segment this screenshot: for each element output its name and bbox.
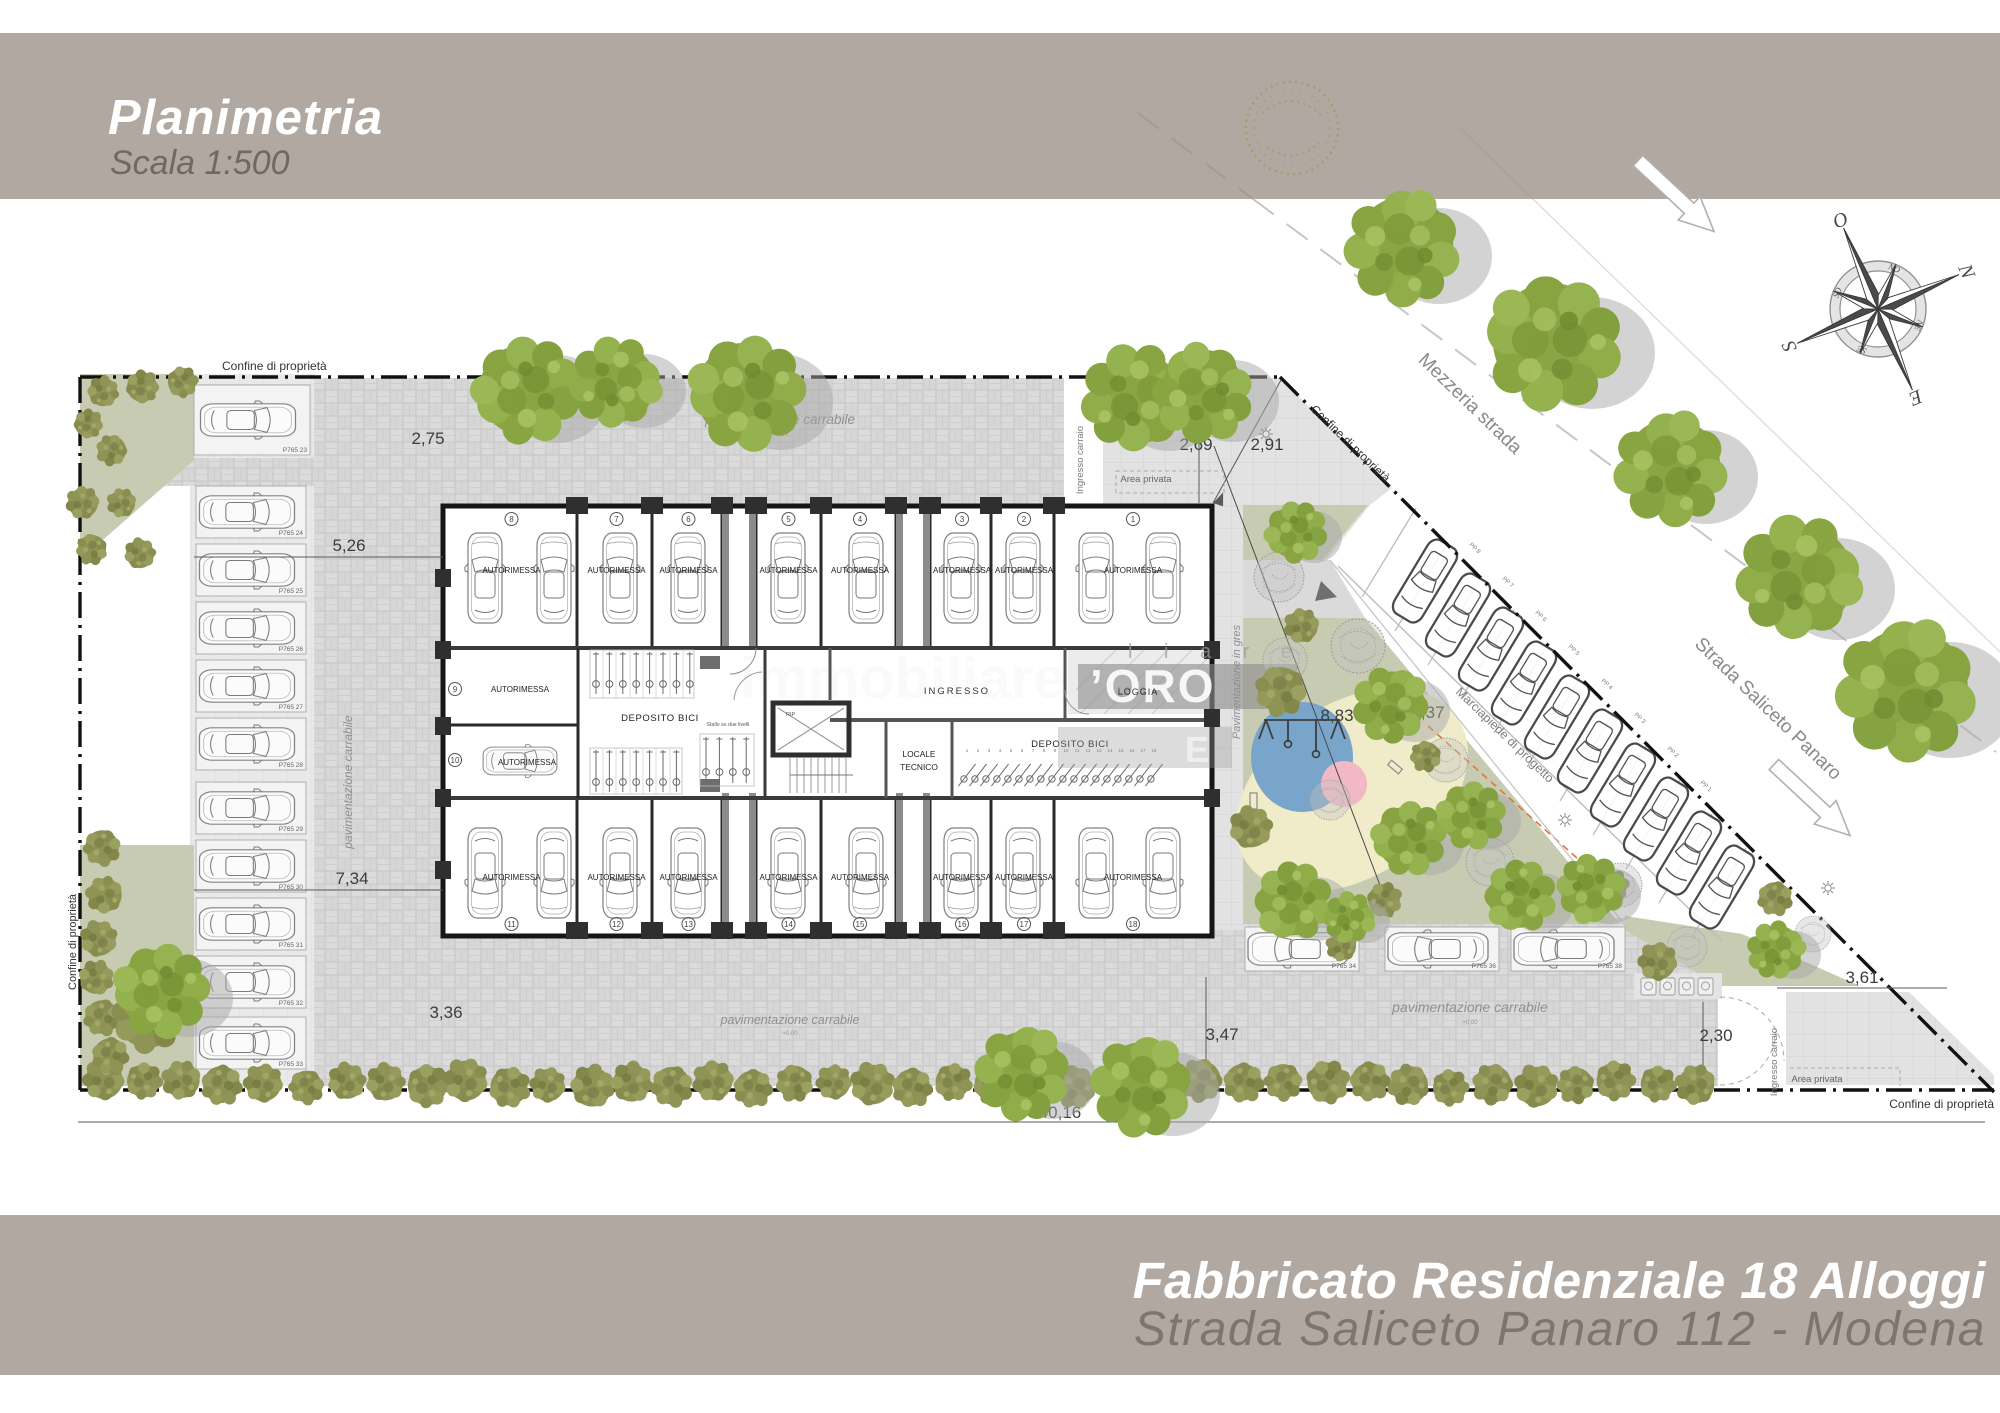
svg-text:3: 3	[960, 515, 965, 524]
svg-text:3,61: 3,61	[1845, 968, 1878, 987]
svg-text:P765 38: P765 38	[1598, 963, 1623, 970]
svg-text:P765 29: P765 29	[279, 826, 304, 833]
svg-text:AUTORIMESSA: AUTORIMESSA	[995, 566, 1054, 575]
svg-text:2,91: 2,91	[1250, 435, 1283, 454]
svg-text:RIP: RIP	[786, 712, 796, 718]
svg-text:Strada Saliceto Panaro 112 - M: Strada Saliceto Panaro 112 - Modena	[1134, 1303, 1986, 1356]
svg-text:AUTORIMESSA: AUTORIMESSA	[491, 685, 550, 694]
svg-text:P765 33: P765 33	[279, 1061, 304, 1068]
svg-text:11: 11	[507, 920, 516, 929]
svg-text:P765 23: P765 23	[283, 447, 308, 454]
svg-text:AUTORIMESSA: AUTORIMESSA	[831, 566, 890, 575]
svg-text:+0,00: +0,00	[782, 1031, 798, 1037]
svg-text:1: 1	[1131, 515, 1136, 524]
svg-text:P765 32: P765 32	[279, 1000, 304, 1007]
svg-text:+0,00: +0,00	[1462, 1020, 1478, 1026]
svg-text:AUTORIMESSA: AUTORIMESSA	[587, 566, 646, 575]
svg-text:P765 27: P765 27	[279, 704, 304, 711]
svg-text:AUTORIMESSA: AUTORIMESSA	[498, 758, 557, 767]
svg-text:immobiliare: immobiliare	[740, 646, 1066, 711]
svg-text:16: 16	[958, 920, 967, 929]
svg-text:13: 13	[684, 920, 693, 929]
svg-text:Fabbricato Residenziale 18 All: Fabbricato Residenziale 18 Alloggi	[1133, 1252, 1988, 1309]
svg-text:2: 2	[1022, 515, 1027, 524]
svg-text:17: 17	[1020, 920, 1029, 929]
svg-text:LOCALE: LOCALE	[902, 749, 935, 759]
svg-text:P765 24: P765 24	[279, 530, 304, 537]
svg-text:DEPOSITO BICI: DEPOSITO BICI	[621, 713, 699, 724]
svg-text:15: 15	[856, 920, 865, 929]
svg-text:3,36: 3,36	[429, 1003, 462, 1022]
svg-text:P765 31: P765 31	[279, 942, 304, 949]
svg-text:2,30: 2,30	[1699, 1026, 1732, 1045]
svg-text:Stallo su due livelli: Stallo su due livelli	[707, 722, 750, 728]
svg-text:AUTORIMESSA: AUTORIMESSA	[587, 873, 646, 882]
svg-text:9: 9	[453, 685, 458, 694]
svg-text:AUTORIMESSA: AUTORIMESSA	[1104, 566, 1163, 575]
svg-text:Confine di proprietà: Confine di proprietà	[1889, 1097, 1994, 1111]
svg-text:AUTORIMESSA: AUTORIMESSA	[482, 873, 541, 882]
svg-text:TECNICO: TECNICO	[900, 762, 938, 772]
svg-text:Area privata: Area privata	[1120, 474, 1172, 485]
svg-text:Ingresso carraio: Ingresso carraio	[1769, 1028, 1780, 1096]
svg-text:pavimentazione carrabile: pavimentazione carrabile	[341, 715, 355, 850]
svg-text:pavimentazione carrabile: pavimentazione carrabile	[1391, 999, 1548, 1015]
svg-text:AUTORIMESSA: AUTORIMESSA	[995, 873, 1054, 882]
svg-text:5,26: 5,26	[332, 536, 365, 555]
svg-text:Confine di proprietà: Confine di proprietà	[222, 359, 327, 373]
svg-text:P765 34: P765 34	[1332, 963, 1357, 970]
svg-text:6: 6	[686, 515, 691, 524]
svg-text:Scala 1:500: Scala 1:500	[110, 144, 290, 182]
svg-text:AUTORIMESSA: AUTORIMESSA	[831, 873, 890, 882]
svg-text:18: 18	[1129, 920, 1138, 929]
svg-text:3,47: 3,47	[1205, 1025, 1238, 1044]
svg-text:10: 10	[451, 756, 460, 765]
svg-text:14: 14	[784, 920, 793, 929]
svg-text:AUTORIMESSA: AUTORIMESSA	[659, 873, 718, 882]
svg-text:AUTORIMESSA: AUTORIMESSA	[659, 566, 718, 575]
svg-text:7,34: 7,34	[335, 869, 368, 888]
svg-text:AUTORIMESSA: AUTORIMESSA	[759, 566, 818, 575]
svg-text:LOGGIA: LOGGIA	[1118, 687, 1159, 697]
svg-text:P765 25: P765 25	[279, 588, 304, 595]
svg-text:P765 28: P765 28	[279, 762, 304, 769]
svg-text:AUTORIMESSA: AUTORIMESSA	[482, 566, 541, 575]
svg-text:AUTORIMESSA: AUTORIMESSA	[759, 873, 818, 882]
svg-text:P765 26: P765 26	[279, 646, 304, 653]
svg-text:Area privata: Area privata	[1791, 1074, 1843, 1085]
svg-text:7: 7	[614, 515, 619, 524]
svg-text:12: 12	[612, 920, 621, 929]
svg-text:Planimetria: Planimetria	[108, 91, 383, 145]
svg-text:AUTORIMESSA: AUTORIMESSA	[933, 873, 992, 882]
svg-text:2,75: 2,75	[411, 429, 444, 448]
svg-text:8,83: 8,83	[1320, 706, 1353, 725]
svg-text:4: 4	[858, 515, 863, 524]
svg-text:5: 5	[786, 515, 791, 524]
svg-text:Ingresso carraio: Ingresso carraio	[1075, 426, 1086, 494]
svg-text:AUTORIMESSA: AUTORIMESSA	[1104, 873, 1163, 882]
svg-text:8: 8	[509, 515, 514, 524]
svg-text:E: E	[1185, 729, 1209, 770]
svg-text:AUTORIMESSA: AUTORIMESSA	[933, 566, 992, 575]
svg-text:pavimentazione carrabile: pavimentazione carrabile	[720, 1013, 860, 1027]
svg-text:Confine di proprietà: Confine di proprietà	[67, 893, 79, 990]
svg-text:’ORO: ’ORO	[1090, 660, 1216, 712]
svg-text:P765 36: P765 36	[1472, 963, 1497, 970]
